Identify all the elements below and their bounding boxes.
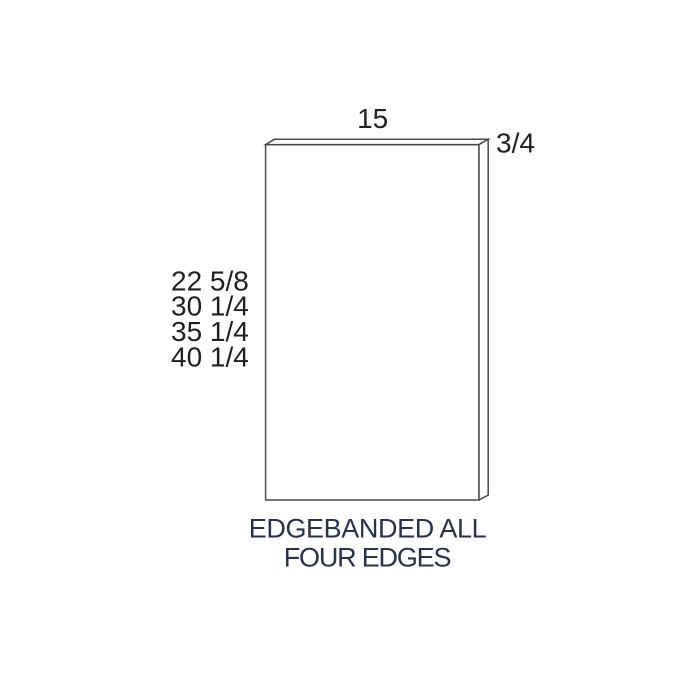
svg-text:EDGEBANDED ALL: EDGEBANDED ALL [249,514,487,544]
svg-text:40 1/4: 40 1/4 [171,342,249,373]
svg-text:3/4: 3/4 [496,127,535,158]
svg-text:15: 15 [357,103,388,134]
svg-text:FOUR EDGES: FOUR EDGES [284,542,451,572]
